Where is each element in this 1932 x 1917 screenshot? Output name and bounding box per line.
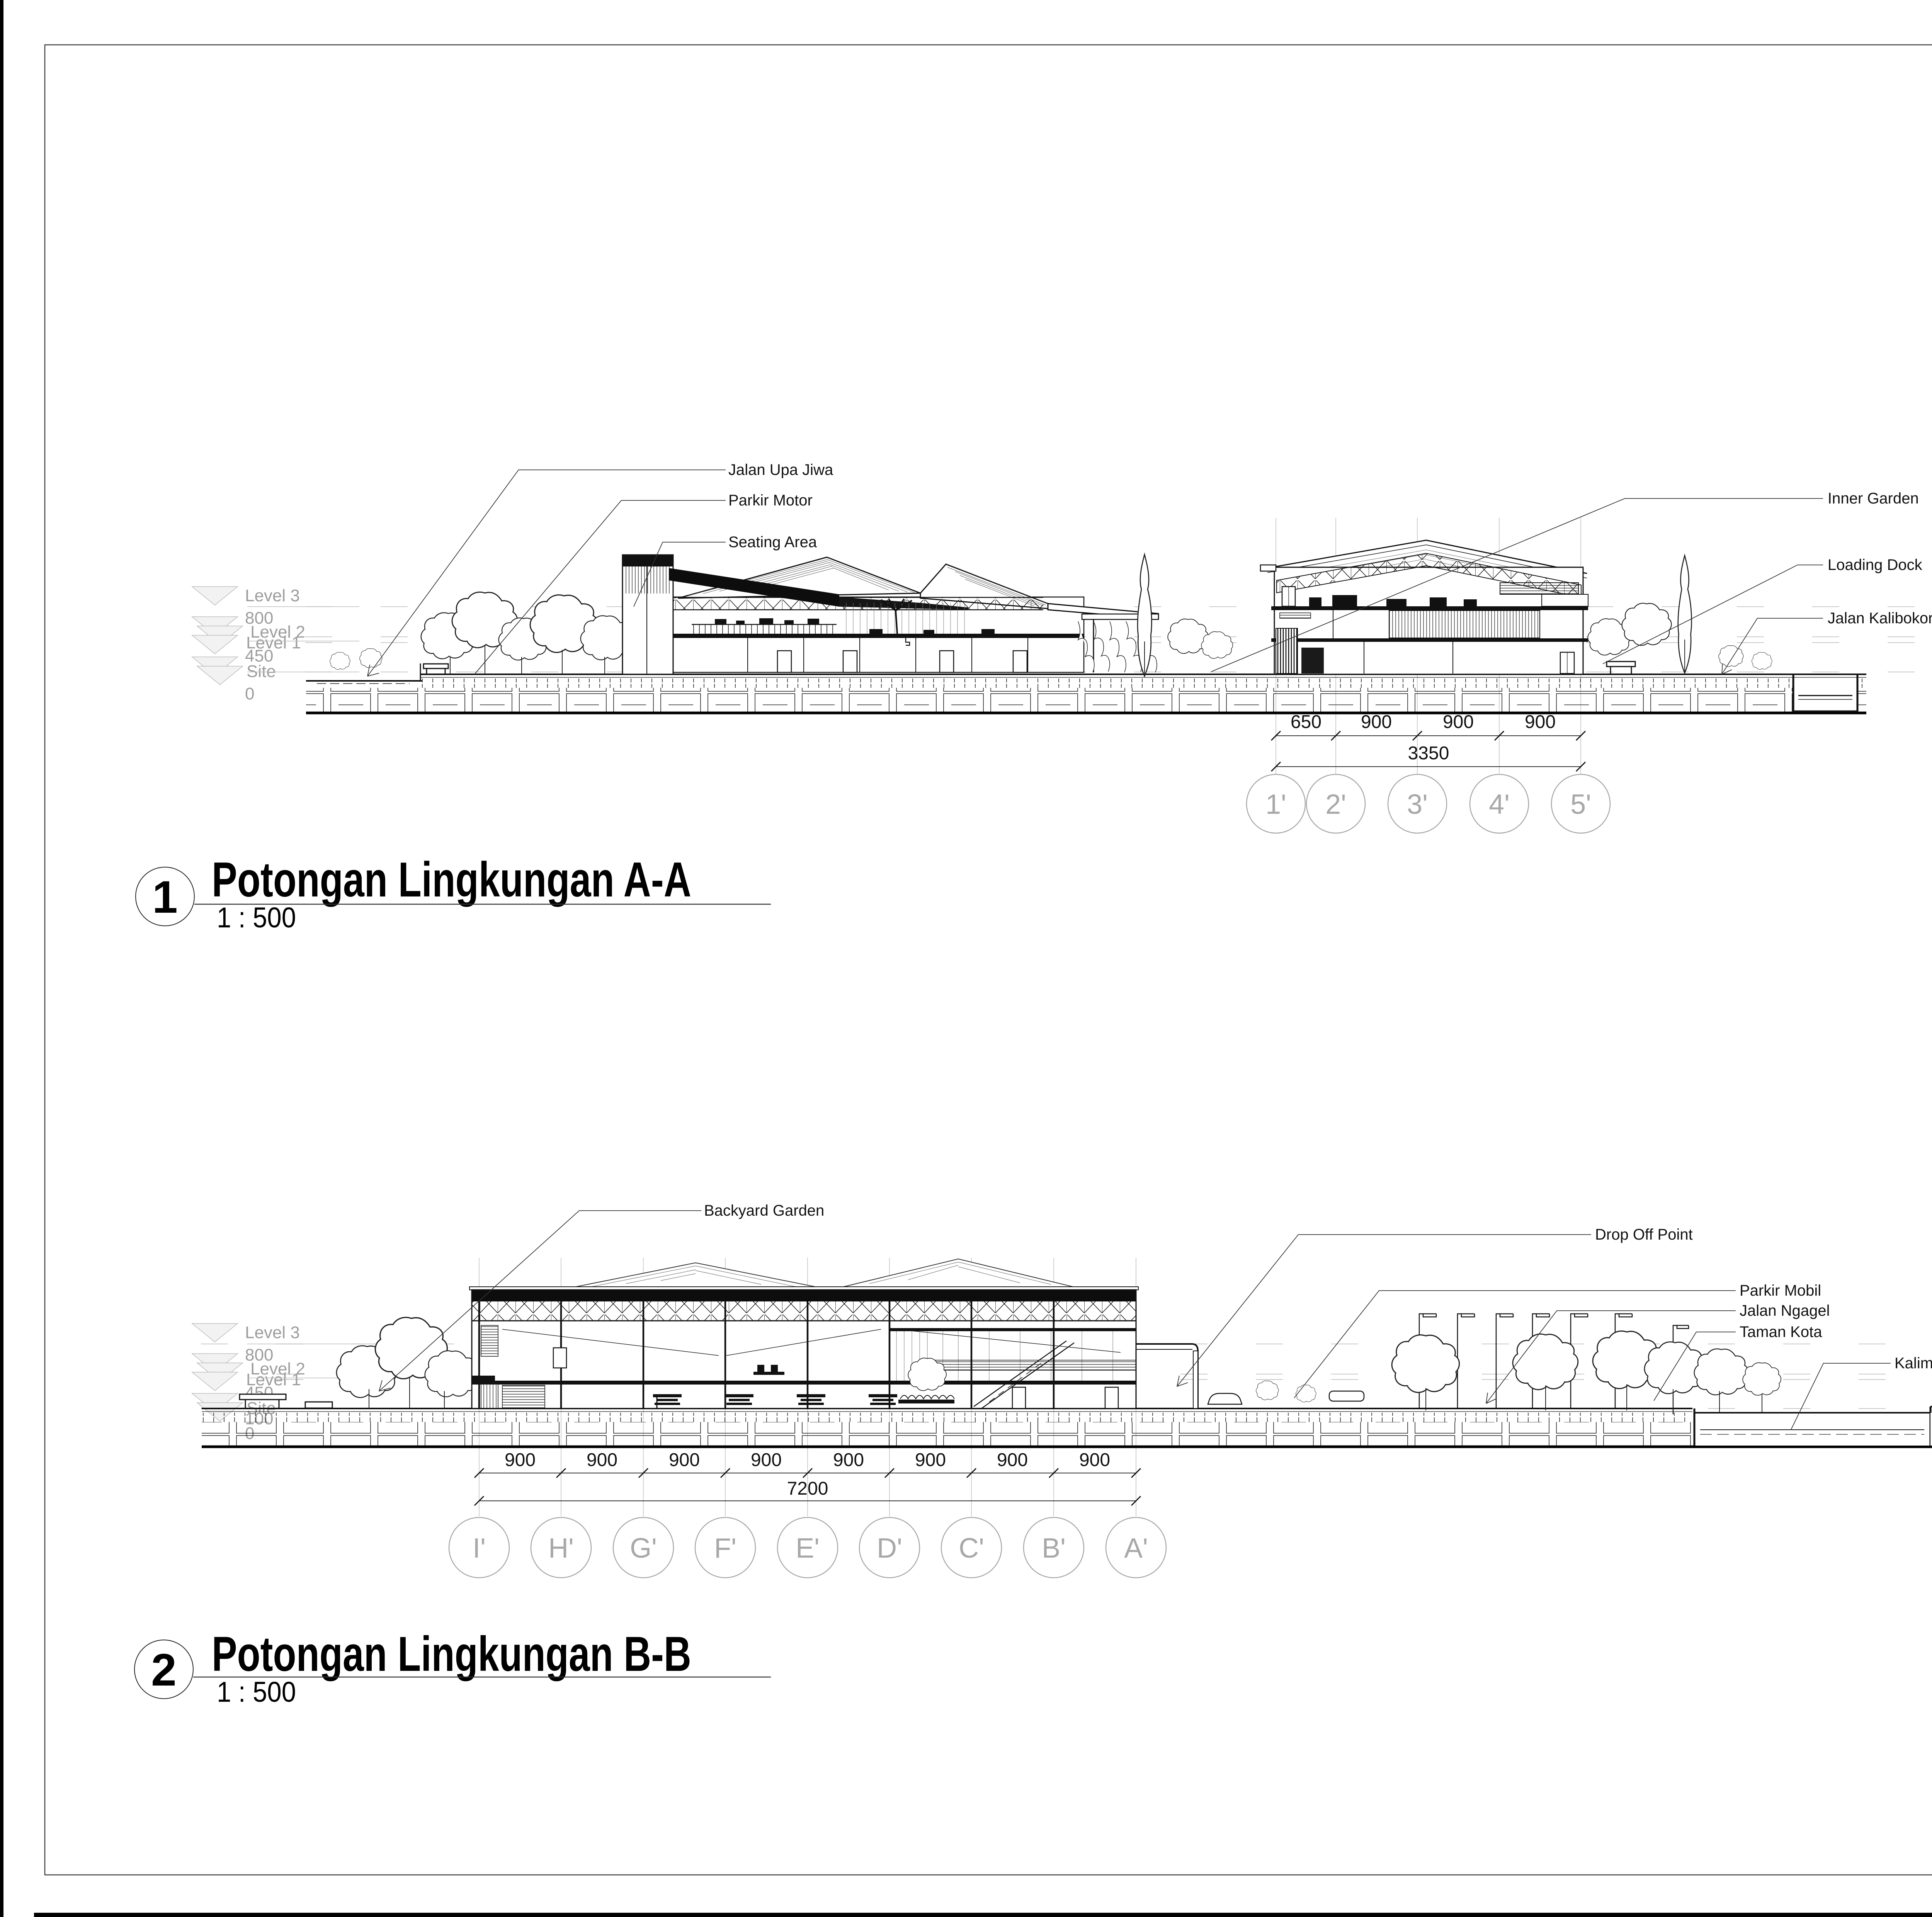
svg-text:900: 900 — [587, 1450, 617, 1470]
svg-text:Jalan Upa Jiwa: Jalan Upa Jiwa — [728, 461, 833, 478]
svg-text:I': I' — [473, 1533, 486, 1564]
svg-text:900: 900 — [1361, 712, 1392, 732]
svg-text:900: 900 — [751, 1450, 782, 1470]
svg-text:F': F' — [714, 1533, 736, 1564]
svg-text:Potongan Lingkungan A-A: Potongan Lingkungan A-A — [212, 852, 691, 907]
svg-text:900: 900 — [997, 1450, 1028, 1470]
svg-text:E': E' — [796, 1533, 820, 1564]
svg-text:Kalimas: Kalimas — [1895, 1355, 1932, 1372]
svg-text:900: 900 — [505, 1450, 536, 1470]
svg-text:G': G' — [630, 1533, 657, 1564]
svg-text:Jalan Ngagel: Jalan Ngagel — [1740, 1302, 1830, 1319]
svg-text:7200: 7200 — [787, 1478, 828, 1499]
svg-text:1': 1' — [1265, 789, 1286, 820]
svg-text:Seating Area: Seating Area — [728, 534, 817, 551]
svg-text:Parkir Motor: Parkir Motor — [728, 492, 813, 509]
svg-text:Jalan Kalibokor Selatan: Jalan Kalibokor Selatan — [1828, 610, 1932, 627]
svg-text:Parkir Mobil: Parkir Mobil — [1740, 1282, 1821, 1299]
svg-text:Drop Off Point: Drop Off Point — [1595, 1226, 1693, 1243]
svg-text:650: 650 — [1291, 712, 1321, 732]
svg-text:5': 5' — [1570, 789, 1591, 820]
svg-text:900: 900 — [1525, 712, 1556, 732]
svg-text:Inner Garden: Inner Garden — [1828, 490, 1919, 507]
svg-text:1: 1 — [152, 872, 178, 923]
svg-text:C': C' — [959, 1533, 984, 1564]
svg-text:3350: 3350 — [1408, 743, 1449, 764]
svg-text:900: 900 — [915, 1450, 946, 1470]
svg-text:Site: Site — [247, 662, 276, 681]
svg-text:B': B' — [1042, 1533, 1066, 1564]
svg-text:4': 4' — [1489, 789, 1510, 820]
svg-text:900: 900 — [1079, 1450, 1110, 1470]
svg-text:Backyard Garden: Backyard Garden — [704, 1202, 824, 1219]
svg-text:Taman Kota: Taman Kota — [1740, 1323, 1822, 1340]
svg-text:2': 2' — [1325, 789, 1346, 820]
svg-text:Loading Dock: Loading Dock — [1828, 556, 1923, 573]
svg-text:D': D' — [877, 1533, 902, 1564]
svg-text:2: 2 — [151, 1645, 177, 1696]
svg-text:A': A' — [1124, 1533, 1148, 1564]
svg-text:Potongan Lingkungan B-B: Potongan Lingkungan B-B — [212, 1626, 691, 1681]
svg-text:900: 900 — [669, 1450, 700, 1470]
svg-text:1 : 500: 1 : 500 — [217, 1676, 296, 1708]
svg-text:Level 3: Level 3 — [245, 1323, 300, 1342]
svg-text:H': H' — [548, 1533, 574, 1564]
svg-text:1 : 500: 1 : 500 — [217, 902, 296, 934]
svg-text:Level 3: Level 3 — [245, 586, 300, 605]
svg-text:0: 0 — [245, 684, 254, 703]
svg-text:900: 900 — [833, 1450, 864, 1470]
svg-text:900: 900 — [1443, 712, 1474, 732]
svg-text:3': 3' — [1407, 789, 1428, 820]
